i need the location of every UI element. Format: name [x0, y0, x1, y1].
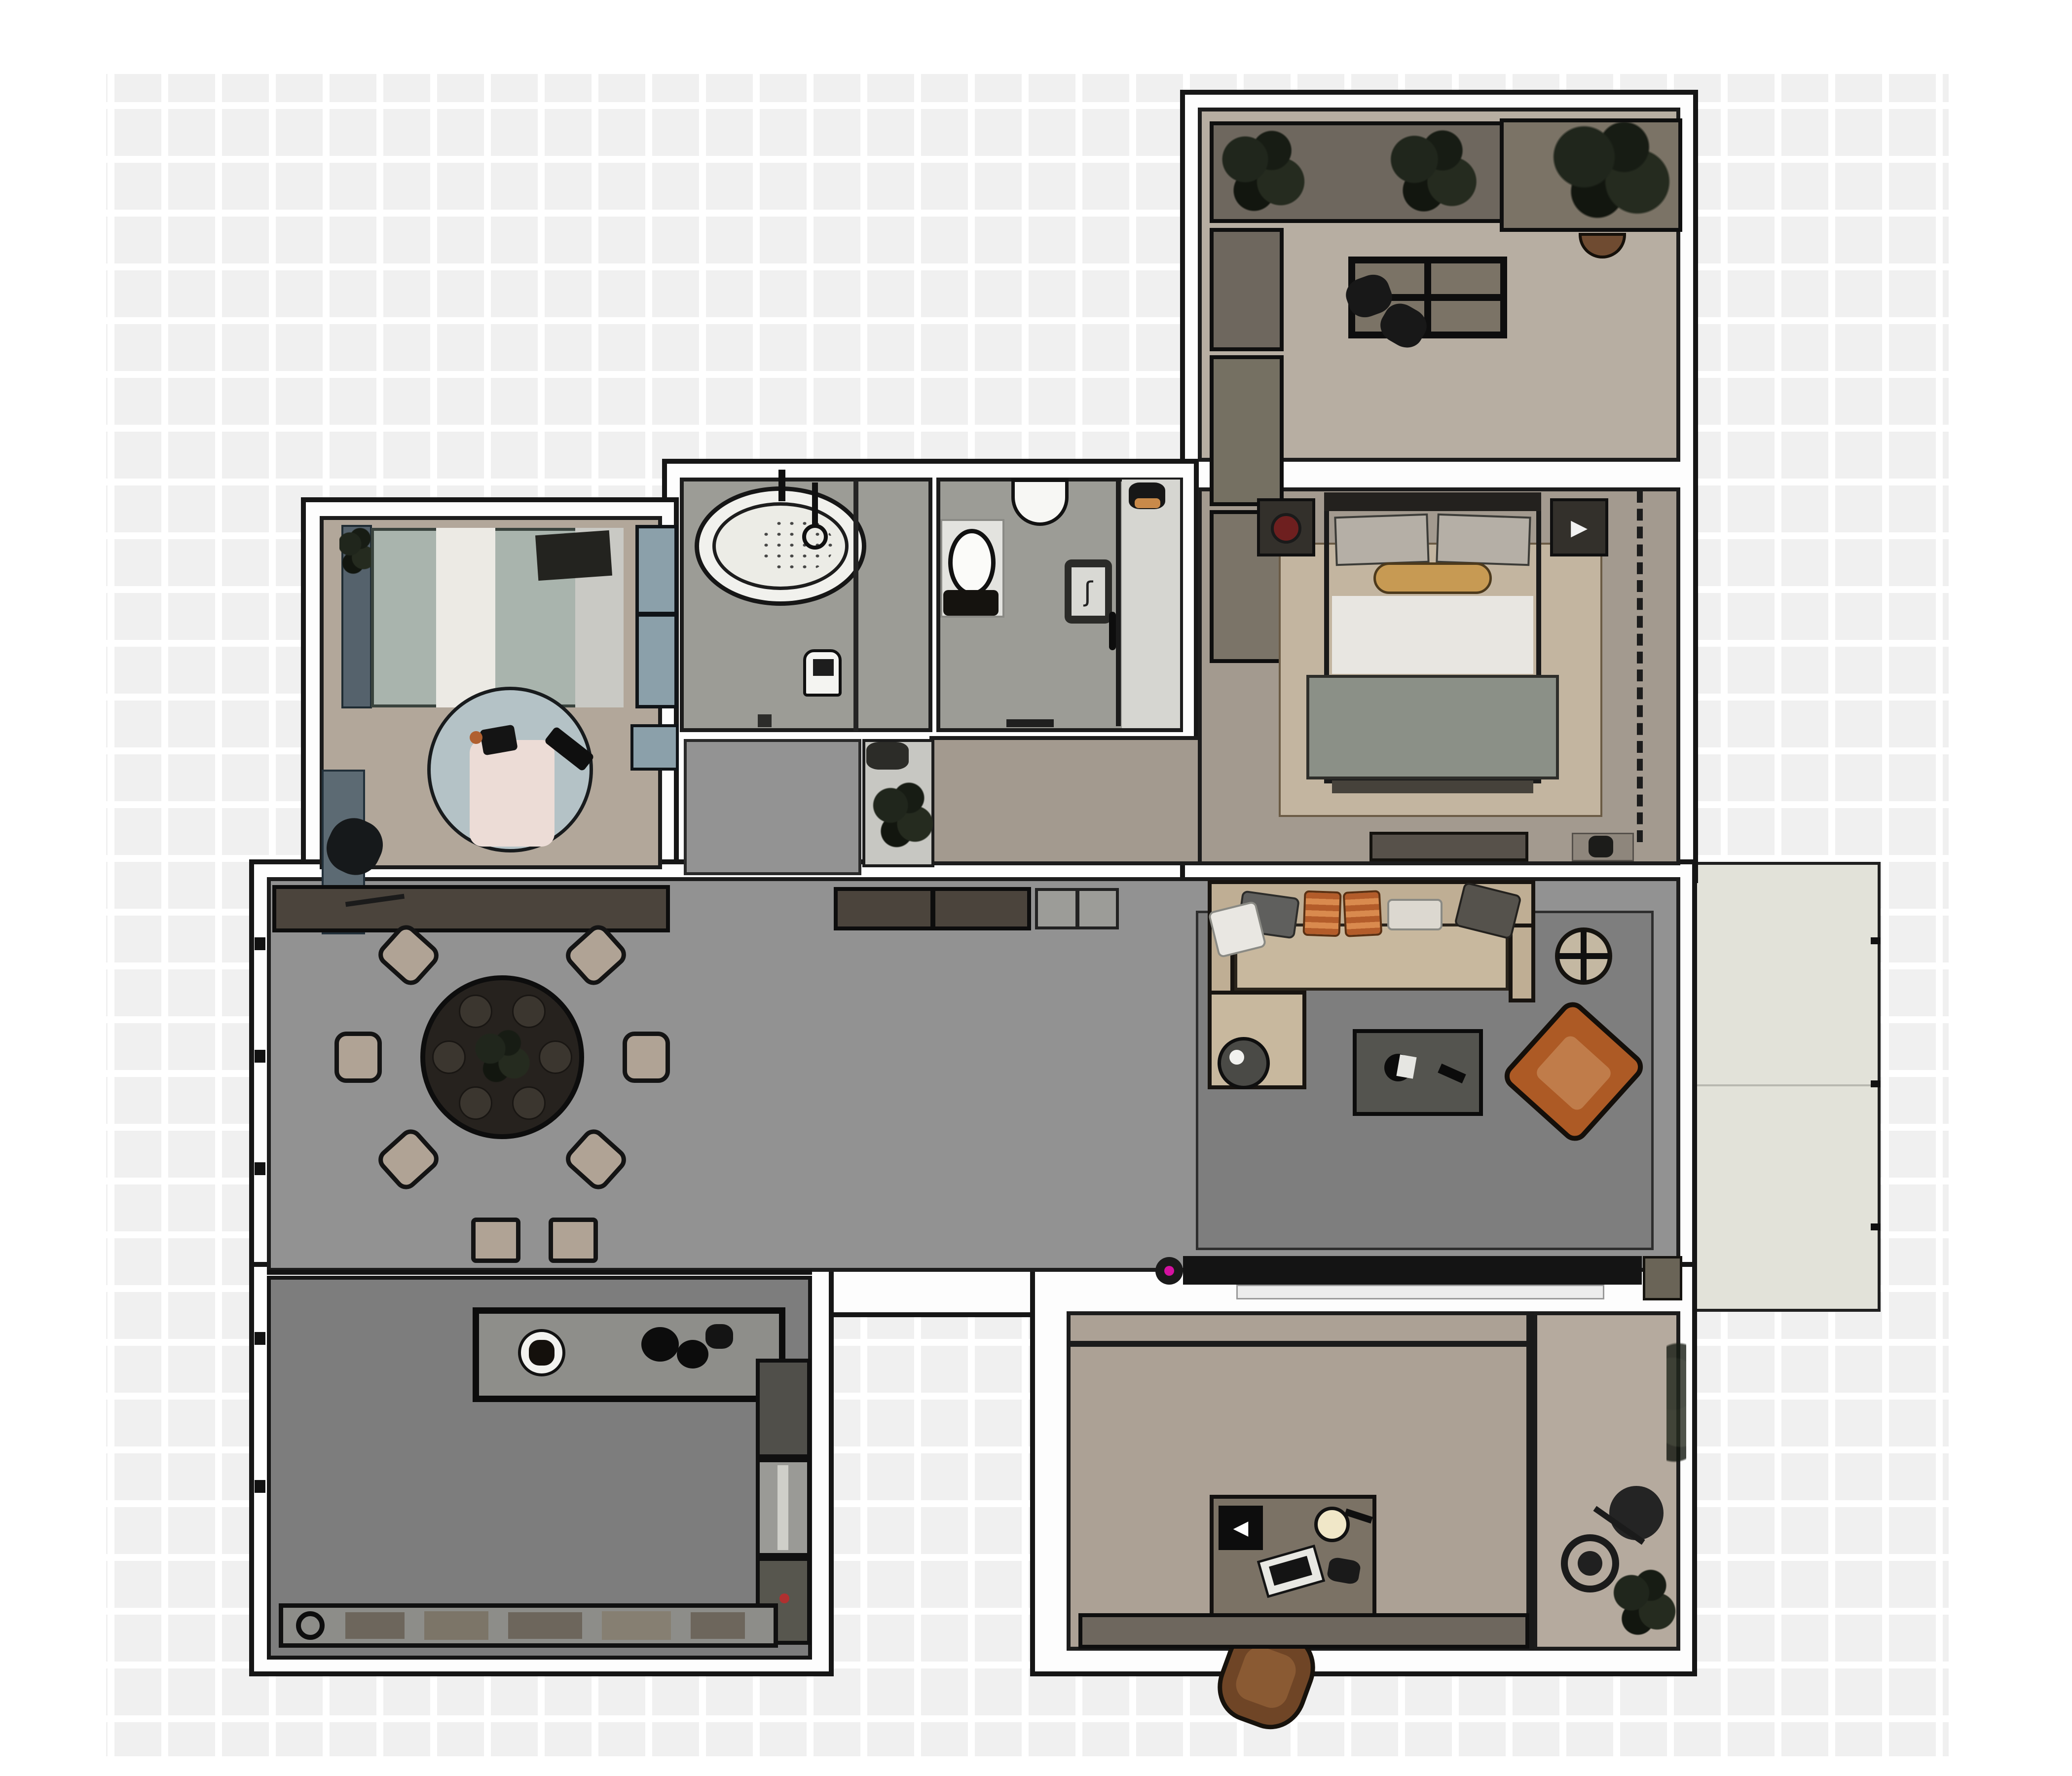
kid-headboard-clutter	[339, 525, 374, 579]
dining-centerpiece	[473, 1029, 532, 1086]
place-setting-6	[512, 995, 546, 1028]
shower-door-handle[interactable]	[1109, 612, 1116, 650]
bar-stool-1[interactable]	[471, 1218, 520, 1263]
kid-bed-tray[interactable]	[535, 530, 612, 581]
bedroom-tv-console[interactable]	[1369, 832, 1528, 861]
plant-closet-2[interactable]	[1386, 128, 1480, 217]
page-margin-top	[0, 0, 2072, 74]
balcony-post-1	[1871, 937, 1881, 944]
bed-bolster[interactable]	[1373, 562, 1492, 594]
floor-bedroom-hall	[929, 736, 1202, 865]
balcony-post-2	[1871, 1080, 1881, 1087]
cushion-orange-2[interactable]	[1343, 890, 1383, 937]
kitchen-fridge-stripe	[777, 1465, 788, 1550]
nightstand-right[interactable]: ▶	[1550, 498, 1608, 556]
entry-bench-divider	[1075, 888, 1079, 929]
page-margin-left	[0, 0, 106, 1776]
sideboard-left[interactable]	[272, 885, 670, 932]
place-setting-1	[539, 1040, 572, 1074]
tv-wall-console[interactable]	[1183, 1256, 1642, 1285]
bath-scale-inner: ʃ	[1072, 567, 1105, 616]
window-marker-kitchen-1	[255, 1332, 265, 1345]
kid-wardrobe-divider	[635, 612, 678, 617]
media-speaker-light	[1164, 1266, 1174, 1276]
sofa-side-table[interactable]	[1218, 1037, 1270, 1089]
shower-glass	[1116, 481, 1121, 726]
place-setting-3	[459, 1086, 492, 1120]
island-sink-items	[529, 1340, 555, 1366]
balcony-post-3	[1871, 1223, 1881, 1230]
entry-coil-center	[1578, 1551, 1602, 1576]
shower-floor	[1122, 480, 1180, 728]
counter-ring	[296, 1611, 325, 1640]
bed-foot-rail	[1332, 780, 1533, 793]
window-marker-living-1	[255, 937, 265, 950]
kid-rug-inner	[470, 740, 555, 847]
study-side-cabinet-2[interactable]	[1210, 355, 1284, 506]
window-marker-living-2	[255, 1050, 265, 1063]
counter-tray-5	[691, 1612, 745, 1639]
bed-pillow-right[interactable]	[1436, 514, 1531, 566]
sideboard-right-divider	[930, 887, 935, 930]
kitchen-divider-line	[267, 1270, 812, 1275]
dining-chair-west[interactable]	[334, 1032, 382, 1083]
kid-drawer-unit[interactable]	[630, 724, 679, 771]
window-marker-kitchen-2	[255, 1480, 265, 1493]
tv-screen[interactable]	[1236, 1285, 1604, 1299]
bed-pillow-left[interactable]	[1334, 514, 1429, 566]
entry-lamp-shade[interactable]	[1609, 1486, 1664, 1540]
counter-tray-2	[424, 1611, 488, 1640]
sofa-arm-right	[1509, 924, 1535, 1002]
place-setting-4	[432, 1040, 466, 1074]
bath-drain	[758, 714, 772, 727]
bath-tap	[778, 470, 785, 501]
laundry-plant[interactable]	[872, 779, 933, 853]
office-shelf[interactable]	[1078, 1613, 1529, 1649]
bedroom-mat-items	[1589, 836, 1613, 857]
cooking-pot-1[interactable]	[641, 1327, 679, 1362]
cushion-white-2[interactable]	[1387, 899, 1443, 930]
nightstand-left-plant[interactable]	[1271, 513, 1301, 544]
floor-plan-canvas: ▶ʃ◀	[0, 0, 2072, 1776]
washing-machine-panel	[813, 659, 834, 676]
office-top-rail	[1067, 1341, 1530, 1347]
laundry-clutter	[866, 742, 909, 770]
balcony-midline	[1682, 1084, 1878, 1086]
cooking-pot-2[interactable]	[677, 1340, 708, 1369]
toilet-bowl[interactable]	[948, 529, 996, 596]
wardrobe-dashed-line	[1637, 491, 1643, 842]
cooking-pot-3[interactable]	[705, 1324, 733, 1349]
window-marker-living-3	[255, 1162, 265, 1175]
entry-plant[interactable]	[1612, 1567, 1676, 1641]
bath-floor-faucet[interactable]	[812, 482, 818, 525]
balcony-floor	[1679, 862, 1881, 1312]
cushion-orange-1[interactable]	[1302, 890, 1341, 937]
page-margin-bottom	[0, 1756, 2072, 1776]
floor-hall-tiles	[684, 739, 861, 875]
desk-lamp[interactable]	[1314, 1507, 1350, 1542]
kitchen-tall-cabinet-1[interactable]	[756, 1359, 811, 1458]
desk-speaker[interactable]: ◀	[1219, 1506, 1263, 1550]
entry-wall-vine	[1666, 1332, 1686, 1480]
study-desk-panel-4	[1431, 301, 1500, 332]
counter-tray-1	[345, 1612, 405, 1639]
kitchen-cabinet-light	[779, 1593, 789, 1603]
bed-blanket[interactable]	[1306, 675, 1559, 779]
toilet-tank	[943, 590, 999, 616]
entry-divider	[1528, 1311, 1534, 1651]
kid-bed-runner	[436, 528, 495, 707]
shower-knobs	[1135, 498, 1160, 508]
media-cabinet-right[interactable]	[1643, 1256, 1682, 1300]
counter-tray-3	[508, 1612, 582, 1639]
plant-closet-1[interactable]	[1219, 128, 1307, 217]
bar-stool-2[interactable]	[549, 1218, 598, 1263]
dining-chair-east[interactable]	[623, 1032, 670, 1083]
place-setting-2	[512, 1086, 546, 1120]
kid-wardrobe[interactable]	[635, 525, 678, 708]
coffee-table[interactable]	[1353, 1029, 1483, 1116]
plant-study-corner[interactable]	[1544, 122, 1677, 221]
bed-sheet	[1332, 596, 1533, 674]
floor-lamp-cross-h	[1558, 953, 1609, 959]
shower-room-threshold	[1006, 719, 1054, 727]
study-side-cabinet-1[interactable]	[1210, 228, 1284, 351]
kid-toy-dot	[470, 731, 482, 744]
bath-partition	[853, 481, 858, 731]
bath-faucet-ring	[802, 524, 828, 550]
side-table-mug	[1229, 1050, 1244, 1065]
place-setting-5	[459, 995, 492, 1028]
bed-headboard	[1324, 492, 1541, 511]
counter-tray-4	[602, 1611, 671, 1640]
study-desk-panel-2	[1431, 263, 1500, 294]
floor-plan-page: { "canvas": {"width": 4200, "height": 36…	[0, 0, 2072, 1776]
page-margin-right	[1949, 0, 2072, 1776]
